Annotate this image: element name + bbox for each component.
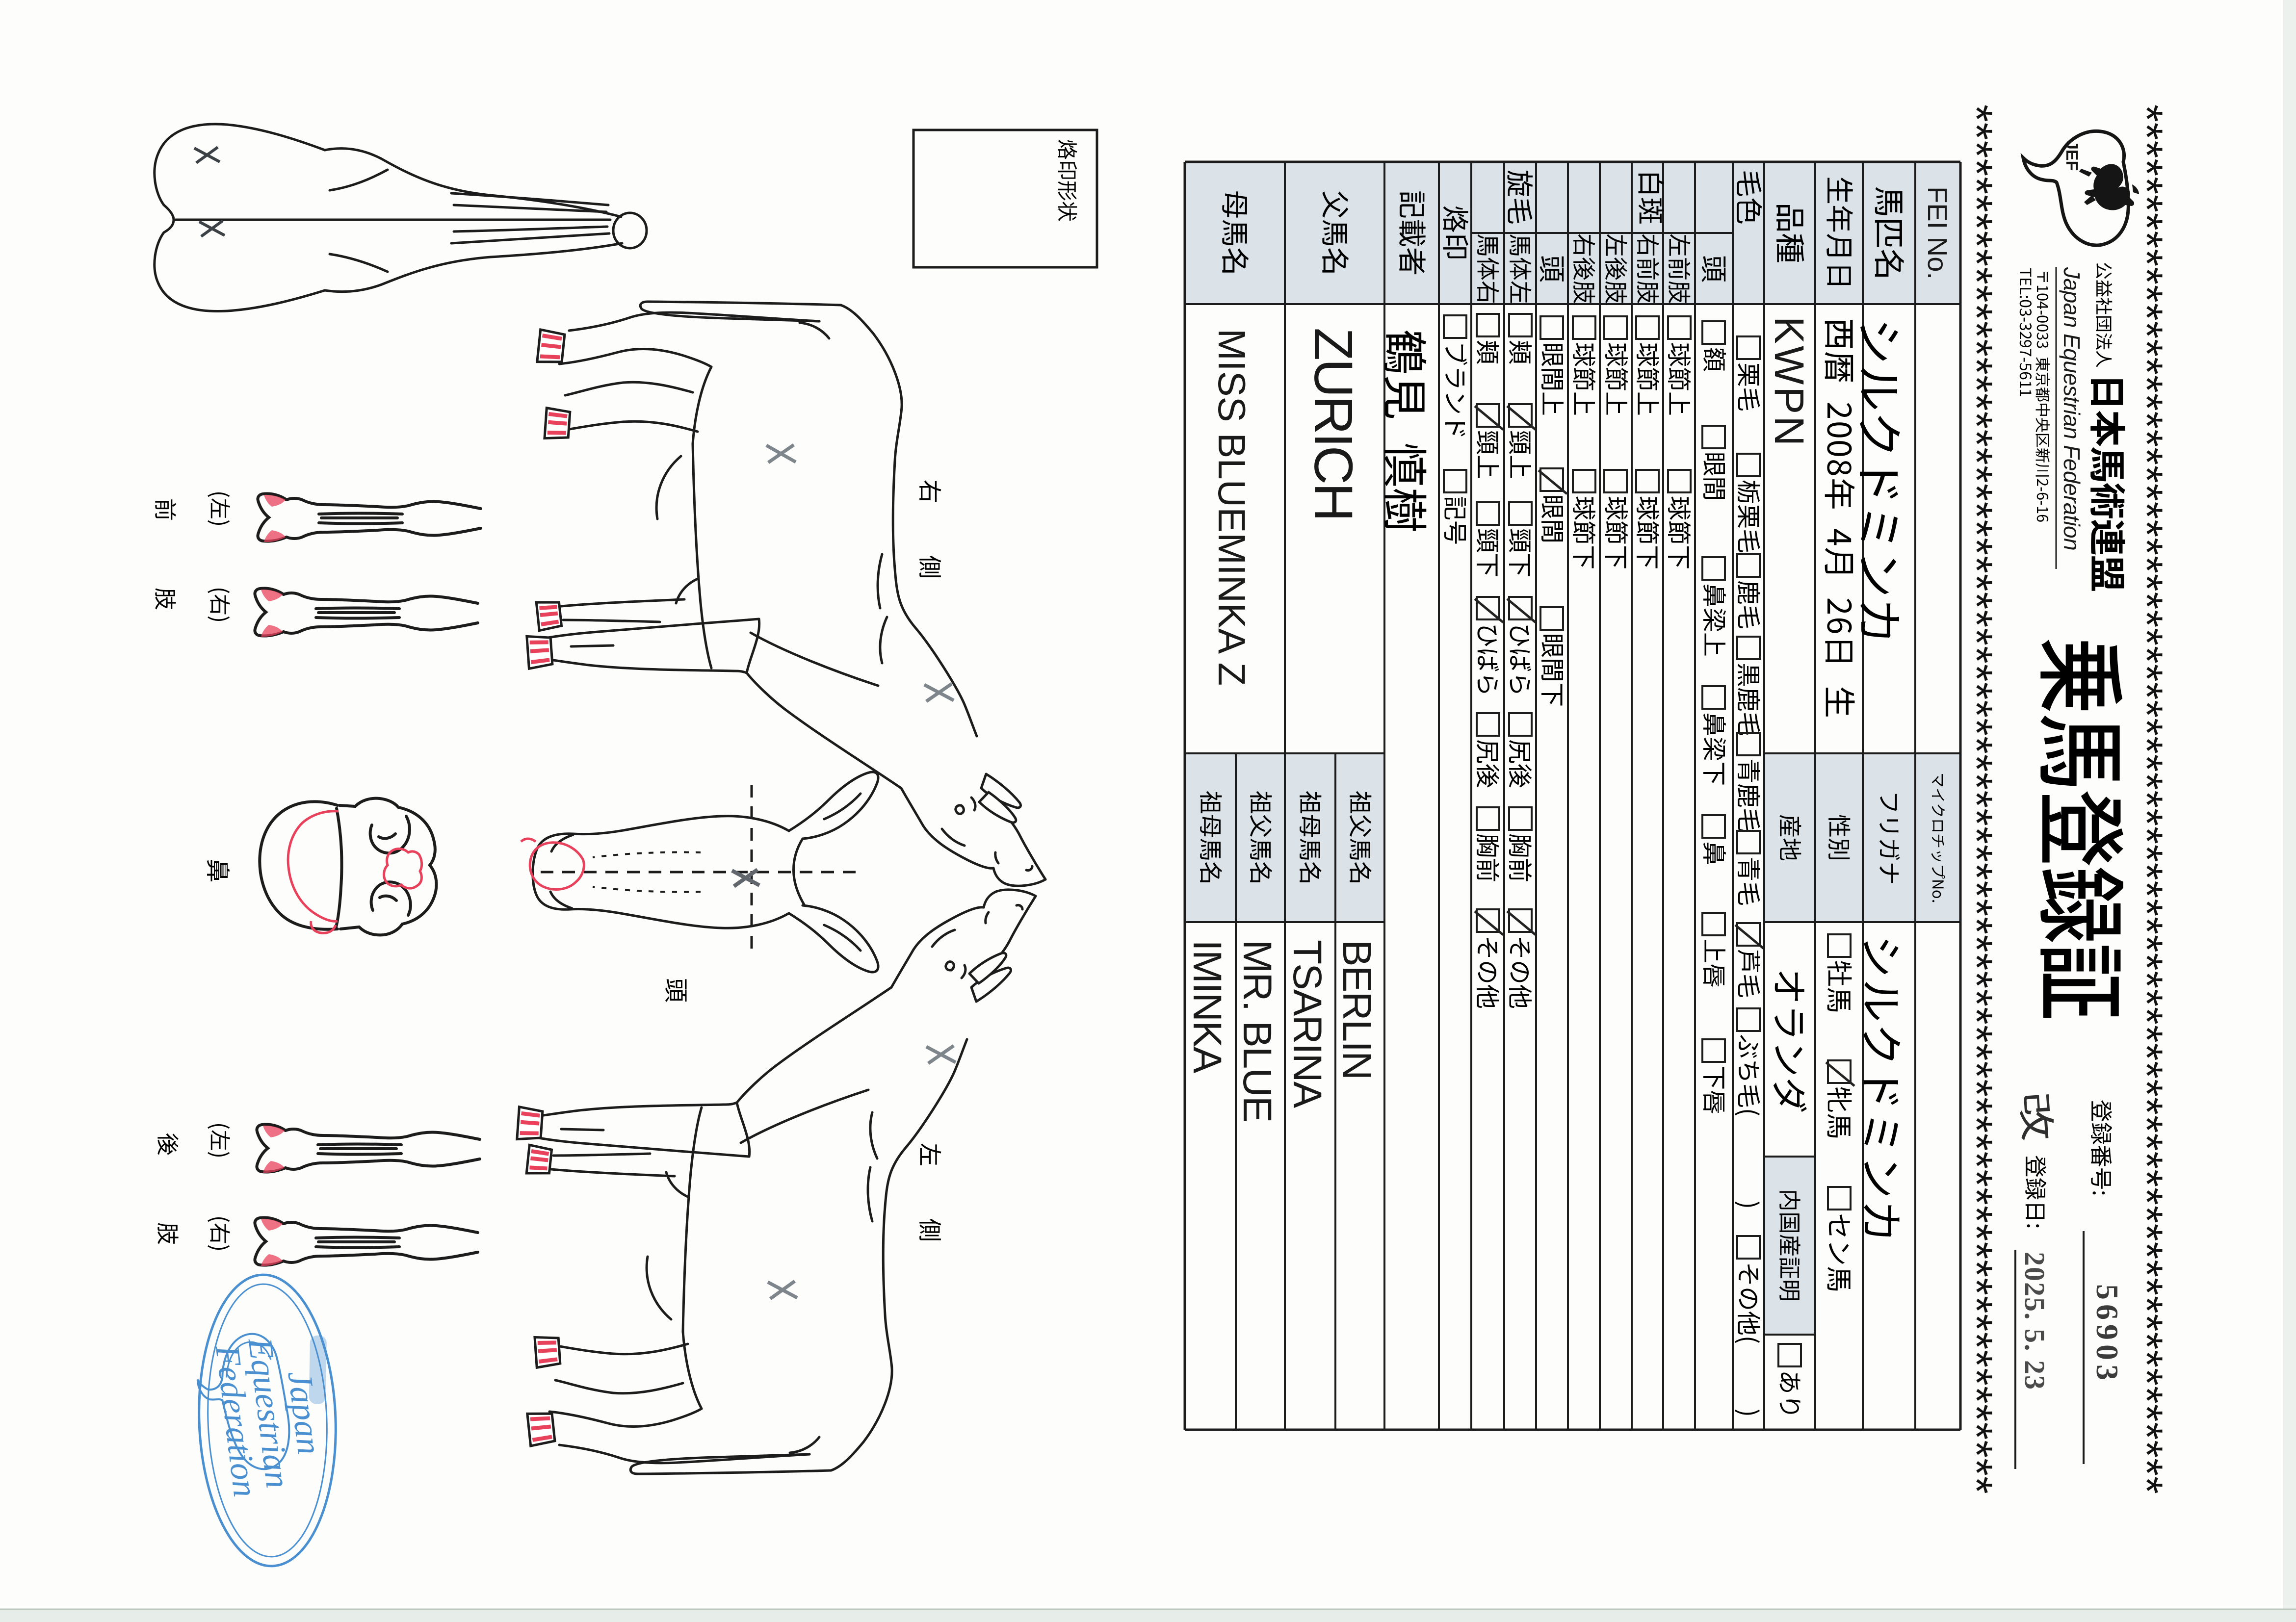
svg-text:******************************: ****************************************… bbox=[2121, 104, 2171, 1494]
svg-text:Japan Equestrian Federation: Japan Equestrian Federation bbox=[2059, 267, 2085, 550]
svg-text:JEF: JEF bbox=[2062, 140, 2081, 171]
svg-text:IMINKA: IMINKA bbox=[1185, 940, 1229, 1074]
svg-text:BERLIN: BERLIN bbox=[1334, 940, 1379, 1079]
svg-text:ZURICH: ZURICH bbox=[1303, 328, 1363, 520]
svg-text:MISS BLUEMINKA Z: MISS BLUEMINKA Z bbox=[1210, 329, 1253, 686]
svg-text:56903: 56903 bbox=[2090, 1284, 2125, 1385]
svg-text:KWPN: KWPN bbox=[1766, 316, 1812, 448]
svg-text:FEI No.: FEI No. bbox=[1922, 186, 1953, 280]
svg-text:2025. 5. 23: 2025. 5. 23 bbox=[2019, 1252, 2051, 1390]
svg-text:TSARINA: TSARINA bbox=[1285, 940, 1330, 1108]
svg-text:MR. BLUE: MR. BLUE bbox=[1235, 940, 1279, 1122]
